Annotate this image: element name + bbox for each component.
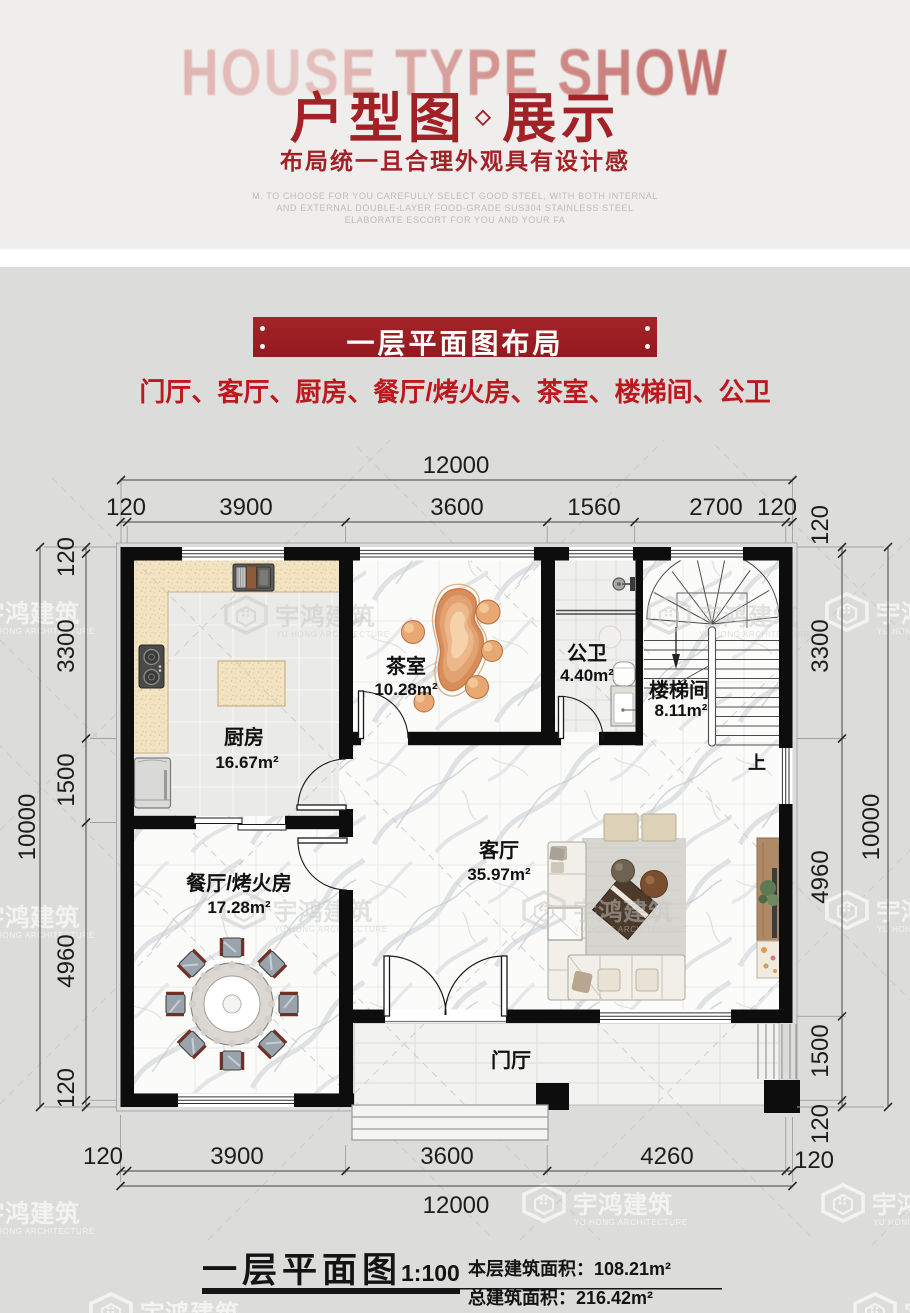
svg-text:2700: 2700 bbox=[689, 494, 742, 521]
svg-text:总建筑面积：216.42m²: 总建筑面积：216.42m² bbox=[468, 1287, 653, 1308]
svg-text:4960: 4960 bbox=[807, 850, 834, 903]
svg-text:12000: 12000 bbox=[423, 452, 490, 479]
svg-text:8.11m²: 8.11m² bbox=[655, 701, 708, 720]
svg-text:10000: 10000 bbox=[14, 794, 41, 861]
svg-text:3900: 3900 bbox=[210, 1143, 263, 1170]
svg-text:3300: 3300 bbox=[53, 619, 80, 672]
svg-text:1560: 1560 bbox=[567, 494, 620, 521]
svg-text:4.40m²: 4.40m² bbox=[560, 666, 614, 685]
svg-text:3900: 3900 bbox=[219, 494, 272, 521]
svg-text:茶室: 茶室 bbox=[386, 654, 426, 678]
svg-text:4960: 4960 bbox=[53, 934, 80, 987]
svg-text:一层平面图: 一层平面图 bbox=[202, 1251, 402, 1290]
svg-text:120: 120 bbox=[807, 1104, 834, 1144]
svg-text:120: 120 bbox=[83, 1143, 123, 1170]
svg-text:3600: 3600 bbox=[430, 494, 483, 521]
svg-text:10.28m²: 10.28m² bbox=[374, 680, 438, 699]
svg-text:客厅: 客厅 bbox=[478, 838, 519, 862]
svg-text:楼梯间: 楼梯间 bbox=[649, 678, 709, 702]
svg-text:120: 120 bbox=[106, 494, 146, 521]
svg-text:120: 120 bbox=[757, 494, 797, 521]
svg-text:35.97m²: 35.97m² bbox=[467, 865, 531, 884]
svg-text:17.28m²: 17.28m² bbox=[207, 898, 271, 917]
svg-text:餐厅/烤火房: 餐厅/烤火房 bbox=[186, 871, 292, 895]
svg-text:门厅: 门厅 bbox=[491, 1048, 531, 1072]
svg-text:10000: 10000 bbox=[858, 794, 885, 861]
svg-text:1500: 1500 bbox=[53, 753, 80, 806]
svg-text:4260: 4260 bbox=[640, 1143, 693, 1170]
svg-text:本层建筑面积：108.21m²: 本层建筑面积：108.21m² bbox=[468, 1258, 671, 1279]
svg-text:120: 120 bbox=[794, 1147, 834, 1174]
svg-text:公卫: 公卫 bbox=[567, 642, 607, 665]
svg-text:3300: 3300 bbox=[807, 619, 834, 672]
svg-text:120: 120 bbox=[53, 537, 80, 577]
svg-text:12000: 12000 bbox=[423, 1192, 490, 1219]
svg-text:1500: 1500 bbox=[807, 1024, 834, 1077]
svg-text:上: 上 bbox=[748, 753, 766, 773]
svg-text:120: 120 bbox=[807, 505, 834, 545]
svg-text:1:100: 1:100 bbox=[401, 1260, 460, 1286]
svg-text:120: 120 bbox=[53, 1068, 80, 1108]
svg-text:厨房: 厨房 bbox=[224, 725, 264, 749]
svg-text:16.67m²: 16.67m² bbox=[215, 753, 279, 772]
svg-text:3600: 3600 bbox=[420, 1143, 473, 1170]
